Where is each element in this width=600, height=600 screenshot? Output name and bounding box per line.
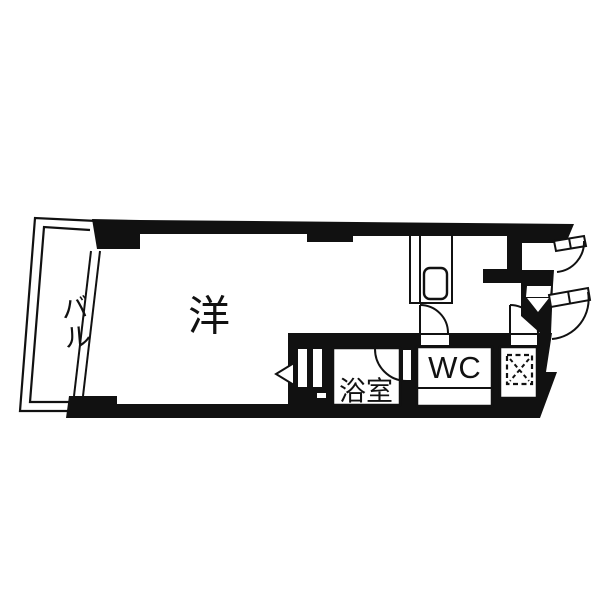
wall-top-left-block <box>92 219 140 249</box>
wc-door-icon <box>420 305 450 346</box>
floorplan-canvas: バル 洋 浴室 WC <box>0 0 600 600</box>
entrance-door-icon <box>549 288 590 339</box>
kitchen-sink-icon <box>424 268 447 299</box>
entrance-threshold <box>526 286 551 297</box>
bathroom-label: 浴室 <box>339 370 393 409</box>
toilet-label: WC <box>428 350 482 386</box>
main-room-label: 洋 <box>188 283 230 344</box>
wall-right-upper <box>521 270 554 285</box>
balcony-label: バル <box>52 292 96 353</box>
wall-kitchen-partition <box>483 235 522 283</box>
upper-right-door-icon <box>554 236 586 272</box>
